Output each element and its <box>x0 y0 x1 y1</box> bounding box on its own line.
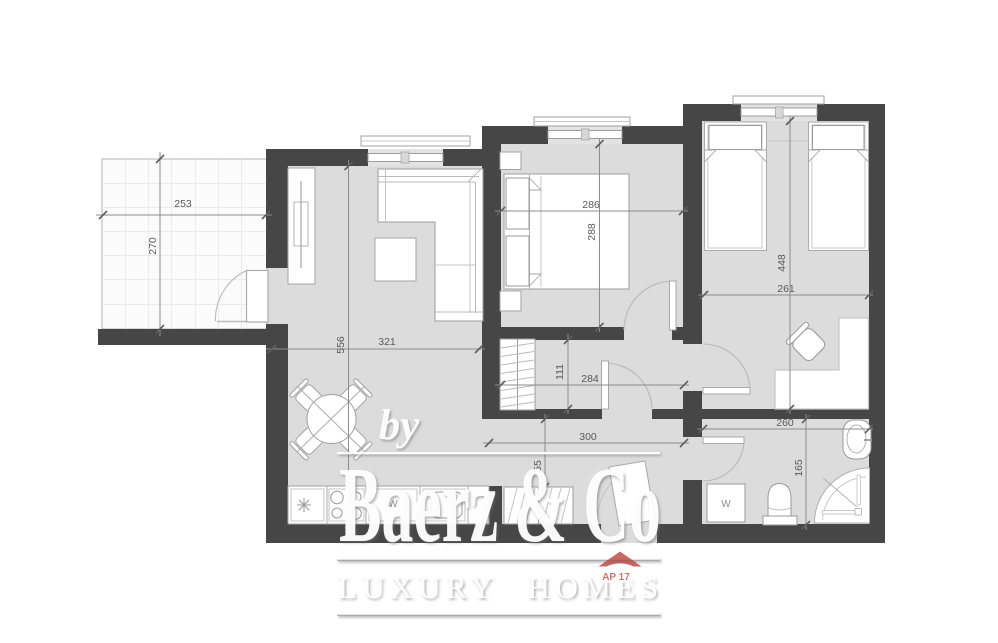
svg-text:165: 165 <box>793 459 805 477</box>
svg-text:by: by <box>379 402 421 449</box>
svg-text:270: 270 <box>147 237 159 255</box>
svg-text:111: 111 <box>554 364 566 380</box>
svg-text:288: 288 <box>586 223 598 241</box>
svg-text:321: 321 <box>378 336 396 348</box>
svg-text:300: 300 <box>579 431 597 443</box>
svg-text:286: 286 <box>582 199 600 211</box>
svg-text:260: 260 <box>776 417 794 429</box>
svg-text:Baerz & Co: Baerz & Co <box>339 446 661 565</box>
svg-text:W: W <box>721 499 731 510</box>
svg-text:284: 284 <box>581 373 599 385</box>
svg-text:AP 17: AP 17 <box>602 572 630 583</box>
svg-text:448: 448 <box>776 254 788 272</box>
svg-text:556: 556 <box>335 336 347 354</box>
svg-text:253: 253 <box>174 198 192 210</box>
svg-text:261: 261 <box>777 283 795 295</box>
